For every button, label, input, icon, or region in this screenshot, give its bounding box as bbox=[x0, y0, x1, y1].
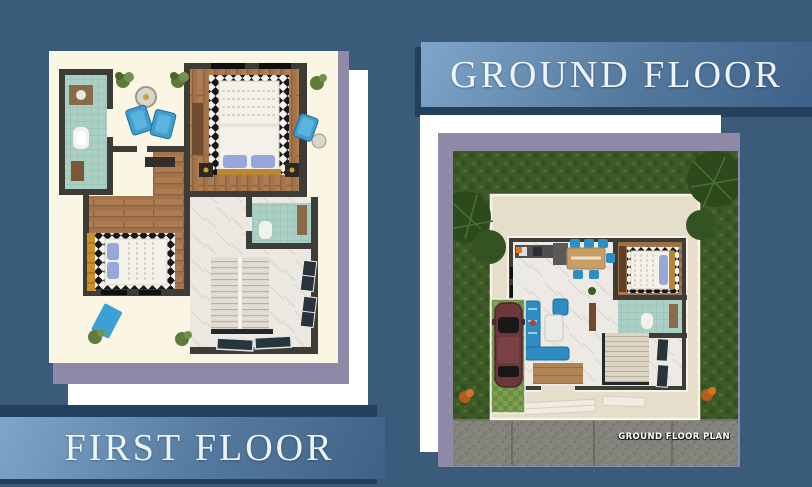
plant-icon bbox=[588, 287, 596, 295]
pillow bbox=[223, 155, 247, 168]
ground-floor-banner: GROUND FLOOR bbox=[421, 42, 812, 107]
pillow bbox=[659, 255, 668, 285]
pillow bbox=[251, 155, 275, 168]
first-floor-plan-illustration bbox=[49, 51, 338, 363]
car bbox=[492, 303, 525, 387]
road bbox=[453, 419, 738, 466]
coffee-table bbox=[545, 315, 563, 341]
ground-staircase bbox=[602, 333, 669, 387]
tv-console bbox=[589, 303, 596, 331]
ground-bedroom bbox=[613, 242, 687, 300]
first-floor-plan-card bbox=[49, 51, 338, 363]
ground-floor-plan-caption: GROUND FLOOR PLAN bbox=[618, 432, 730, 442]
ground-floor-plan-illustration bbox=[453, 151, 738, 466]
ground-bathroom bbox=[618, 300, 687, 338]
wood-deck bbox=[533, 363, 583, 384]
ground-floor-banner-label: GROUND FLOOR bbox=[450, 53, 783, 97]
pillow bbox=[107, 243, 119, 260]
ground-floor-plan-card: GROUND FLOOR PLAN bbox=[453, 151, 738, 466]
floor-plans-poster: GROUND FLOOR bbox=[0, 0, 812, 487]
pillow bbox=[107, 262, 119, 279]
first-floor-banner: FIRST FLOOR bbox=[0, 417, 385, 479]
first-floor-banner-label: FIRST FLOOR bbox=[65, 426, 335, 470]
